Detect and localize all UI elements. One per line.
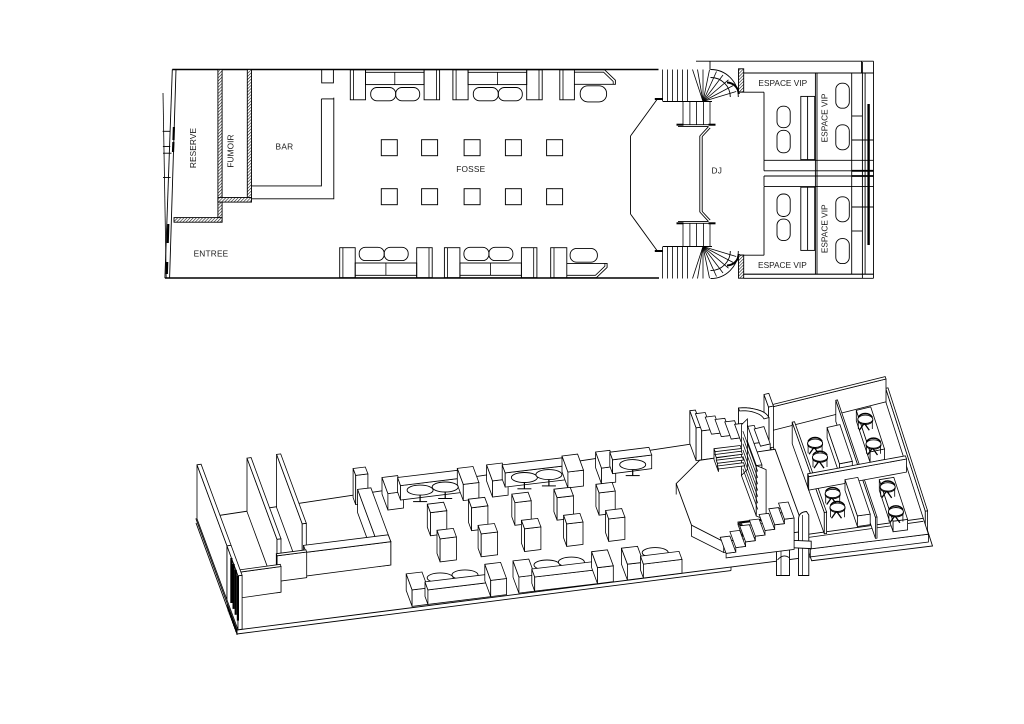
svg-text:BAR: BAR — [276, 142, 294, 152]
svg-text:ESPACE VIP: ESPACE VIP — [758, 260, 807, 270]
svg-text:ENTREE: ENTREE — [194, 248, 229, 258]
svg-text:ESPACE VIP: ESPACE VIP — [820, 204, 830, 253]
svg-text:FUMOIR: FUMOIR — [226, 134, 236, 167]
svg-text:ESPACE VIP: ESPACE VIP — [758, 78, 807, 88]
svg-text:DJ: DJ — [712, 165, 723, 175]
svg-text:ESPACE VIP: ESPACE VIP — [820, 93, 830, 142]
svg-text:FOSSE: FOSSE — [456, 164, 485, 174]
svg-text:RESERVE: RESERVE — [188, 128, 198, 169]
